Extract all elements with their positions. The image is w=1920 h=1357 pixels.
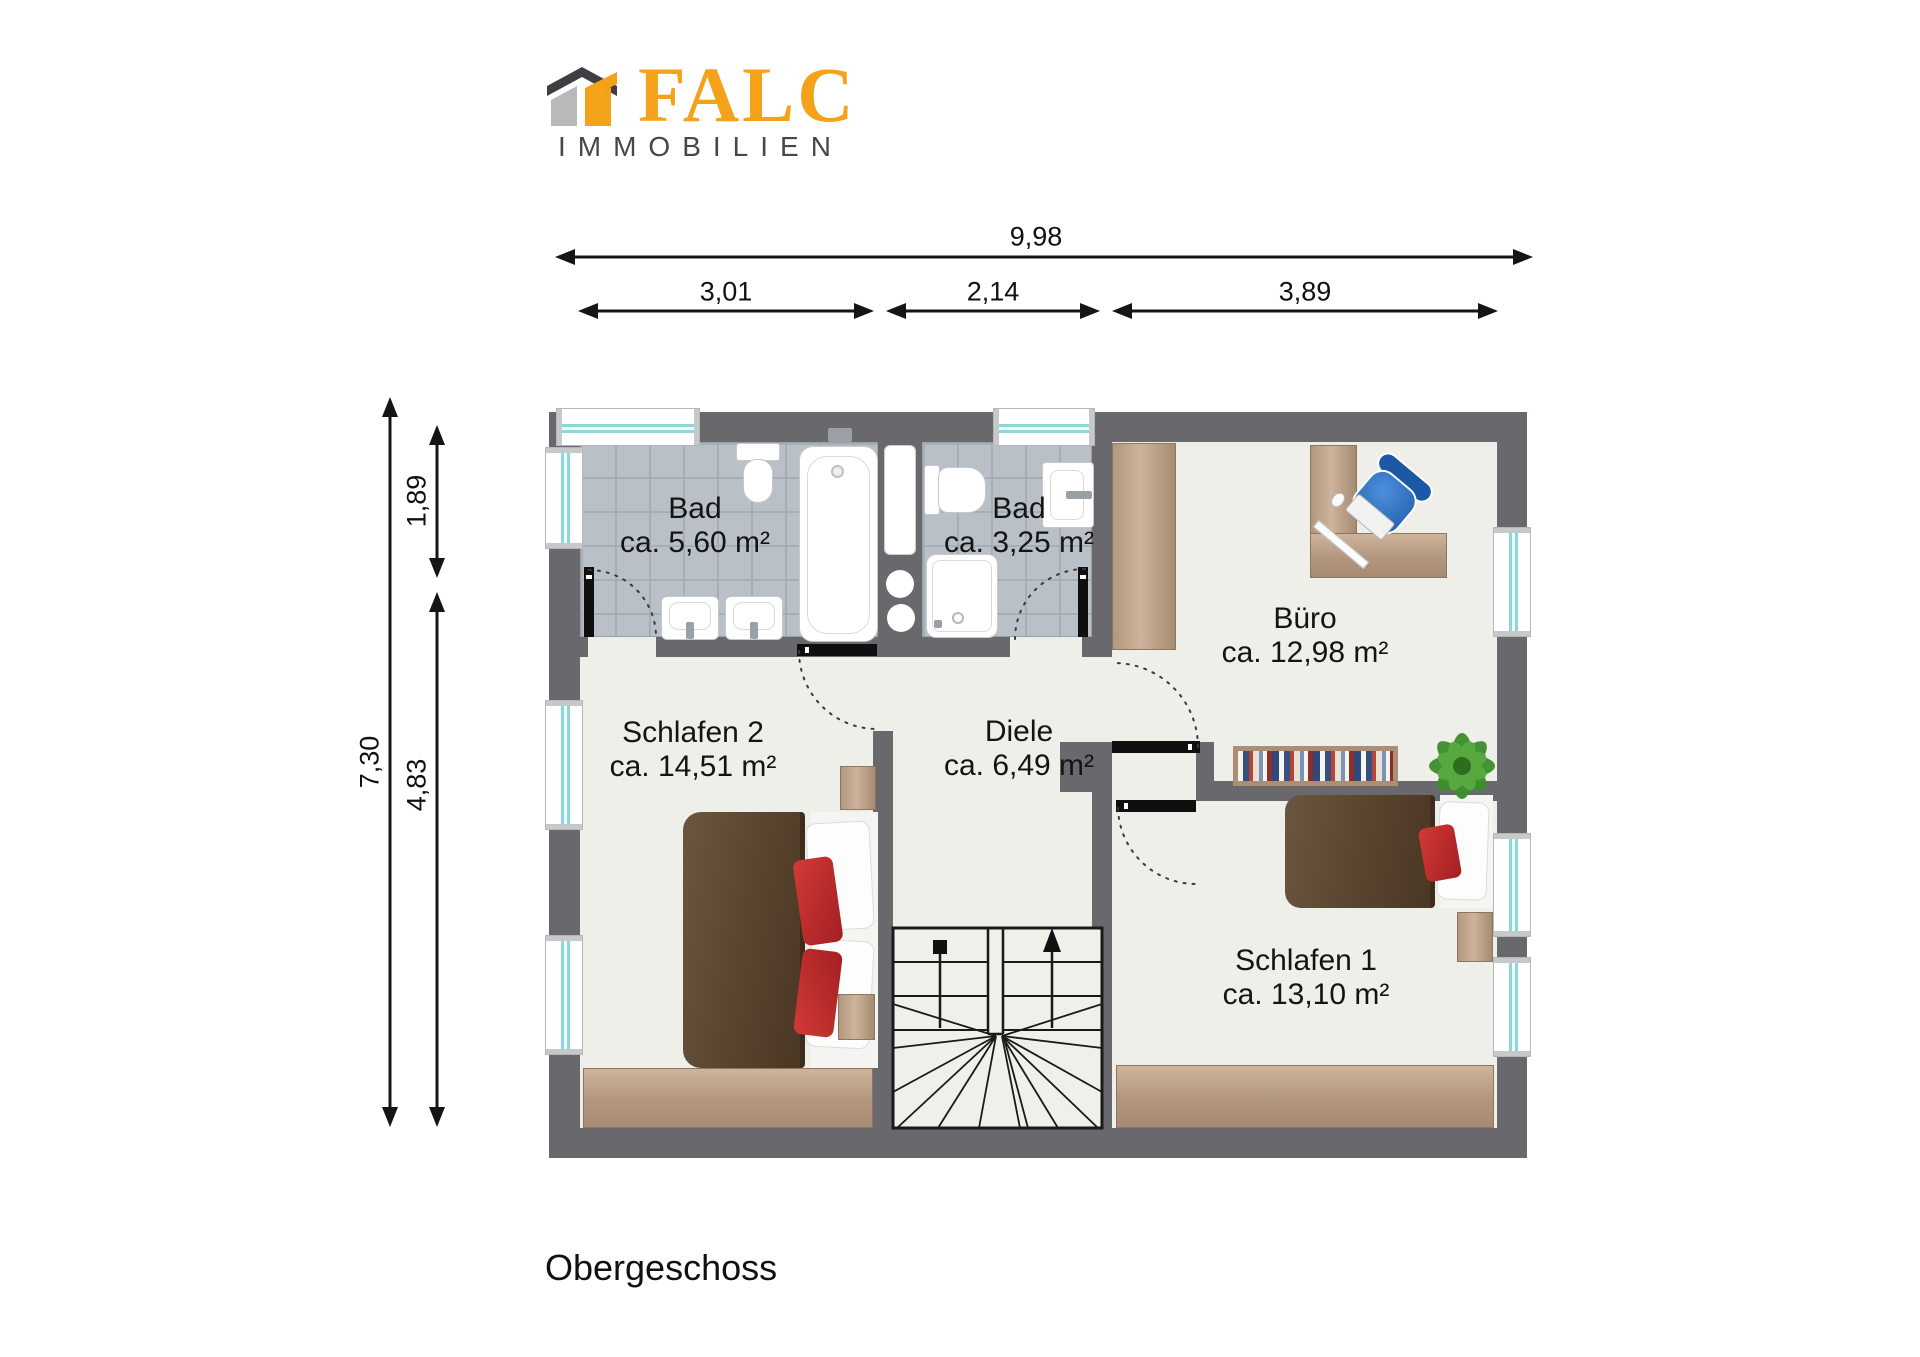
room-name: Schlafen 1 <box>1223 944 1390 978</box>
room-area: ca. 14,51 m² <box>610 750 777 784</box>
dim-total-width: 9,98 <box>1010 222 1063 253</box>
room-name: Bad <box>620 492 770 526</box>
dim-total-height: 7,30 <box>355 736 386 789</box>
room-name: Büro <box>1222 602 1389 636</box>
dim-seg-right: 3,89 <box>1279 277 1332 308</box>
room-name: Diele <box>944 715 1094 749</box>
dim-seg-mid: 2,14 <box>967 277 1020 308</box>
room-label-bad2: Bad ca. 3,25 m² <box>944 492 1094 560</box>
staircase <box>893 928 1102 1128</box>
room-label-bad1: Bad ca. 5,60 m² <box>620 492 770 560</box>
dim-seg-bottom: 4,83 <box>402 759 433 812</box>
floor-title: Obergeschoss <box>545 1247 777 1289</box>
room-area: ca. 13,10 m² <box>1223 978 1390 1012</box>
room-area: ca. 6,49 m² <box>944 749 1094 783</box>
room-area: ca. 5,60 m² <box>620 526 770 560</box>
room-label-buero: Büro ca. 12,98 m² <box>1222 602 1389 670</box>
room-name: Bad <box>944 492 1094 526</box>
dim-seg-top: 1,89 <box>402 475 433 528</box>
plan-overlay <box>0 0 1920 1357</box>
room-area: ca. 12,98 m² <box>1222 636 1389 670</box>
floor-plan-page: FALC IMMOBILIEN <box>0 0 1920 1357</box>
room-label-schlafen1: Schlafen 1 ca. 13,10 m² <box>1223 944 1390 1012</box>
room-label-schlafen2: Schlafen 2 ca. 14,51 m² <box>610 716 777 784</box>
stair-start-marker <box>933 940 947 954</box>
dim-seg-left: 3,01 <box>700 277 753 308</box>
room-label-diele: Diele ca. 6,49 m² <box>944 715 1094 783</box>
room-name: Schlafen 2 <box>610 716 777 750</box>
plant <box>1429 733 1495 799</box>
room-area: ca. 3,25 m² <box>944 526 1094 560</box>
